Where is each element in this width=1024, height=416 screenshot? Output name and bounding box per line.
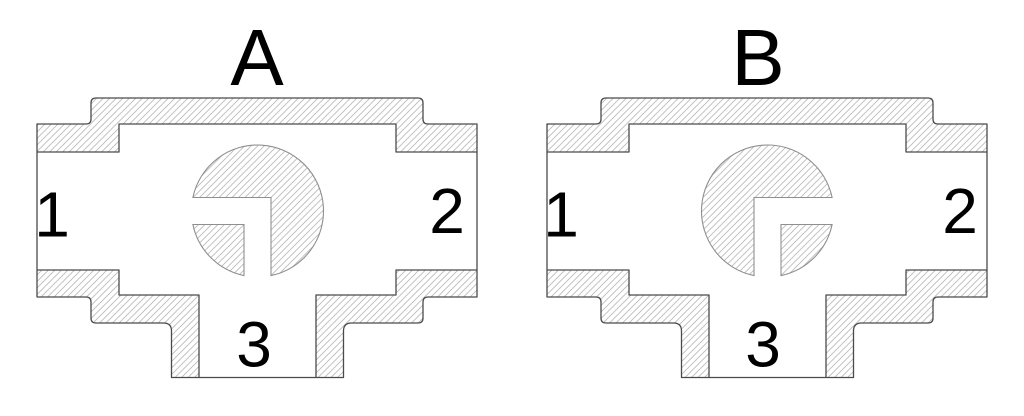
- valve-ball-wedge-b: [781, 225, 832, 276]
- valve-ball-a: [193, 145, 324, 276]
- diagram-a-title: A: [230, 13, 284, 102]
- diagram-b-port-1-label: 1: [543, 179, 579, 251]
- diagram-a: A 1 2 3: [0, 0, 512, 416]
- diagram-b-port-3-label: 3: [745, 309, 781, 381]
- diagram-b: B 1 2 3: [510, 0, 1022, 416]
- diagram-a-port-3-label: 3: [236, 309, 272, 381]
- valve-cross-section-figure: A 1 2 3 B 1 2 3: [0, 0, 1024, 416]
- diagram-a-port-2-label: 2: [429, 175, 465, 247]
- valve-ball-b: [701, 145, 832, 276]
- valve-ball-wedge-a: [193, 225, 244, 276]
- diagram-b-port-2-label: 2: [942, 175, 978, 247]
- diagram-b-title: B: [731, 13, 784, 102]
- diagram-a-port-1-label: 1: [34, 179, 70, 251]
